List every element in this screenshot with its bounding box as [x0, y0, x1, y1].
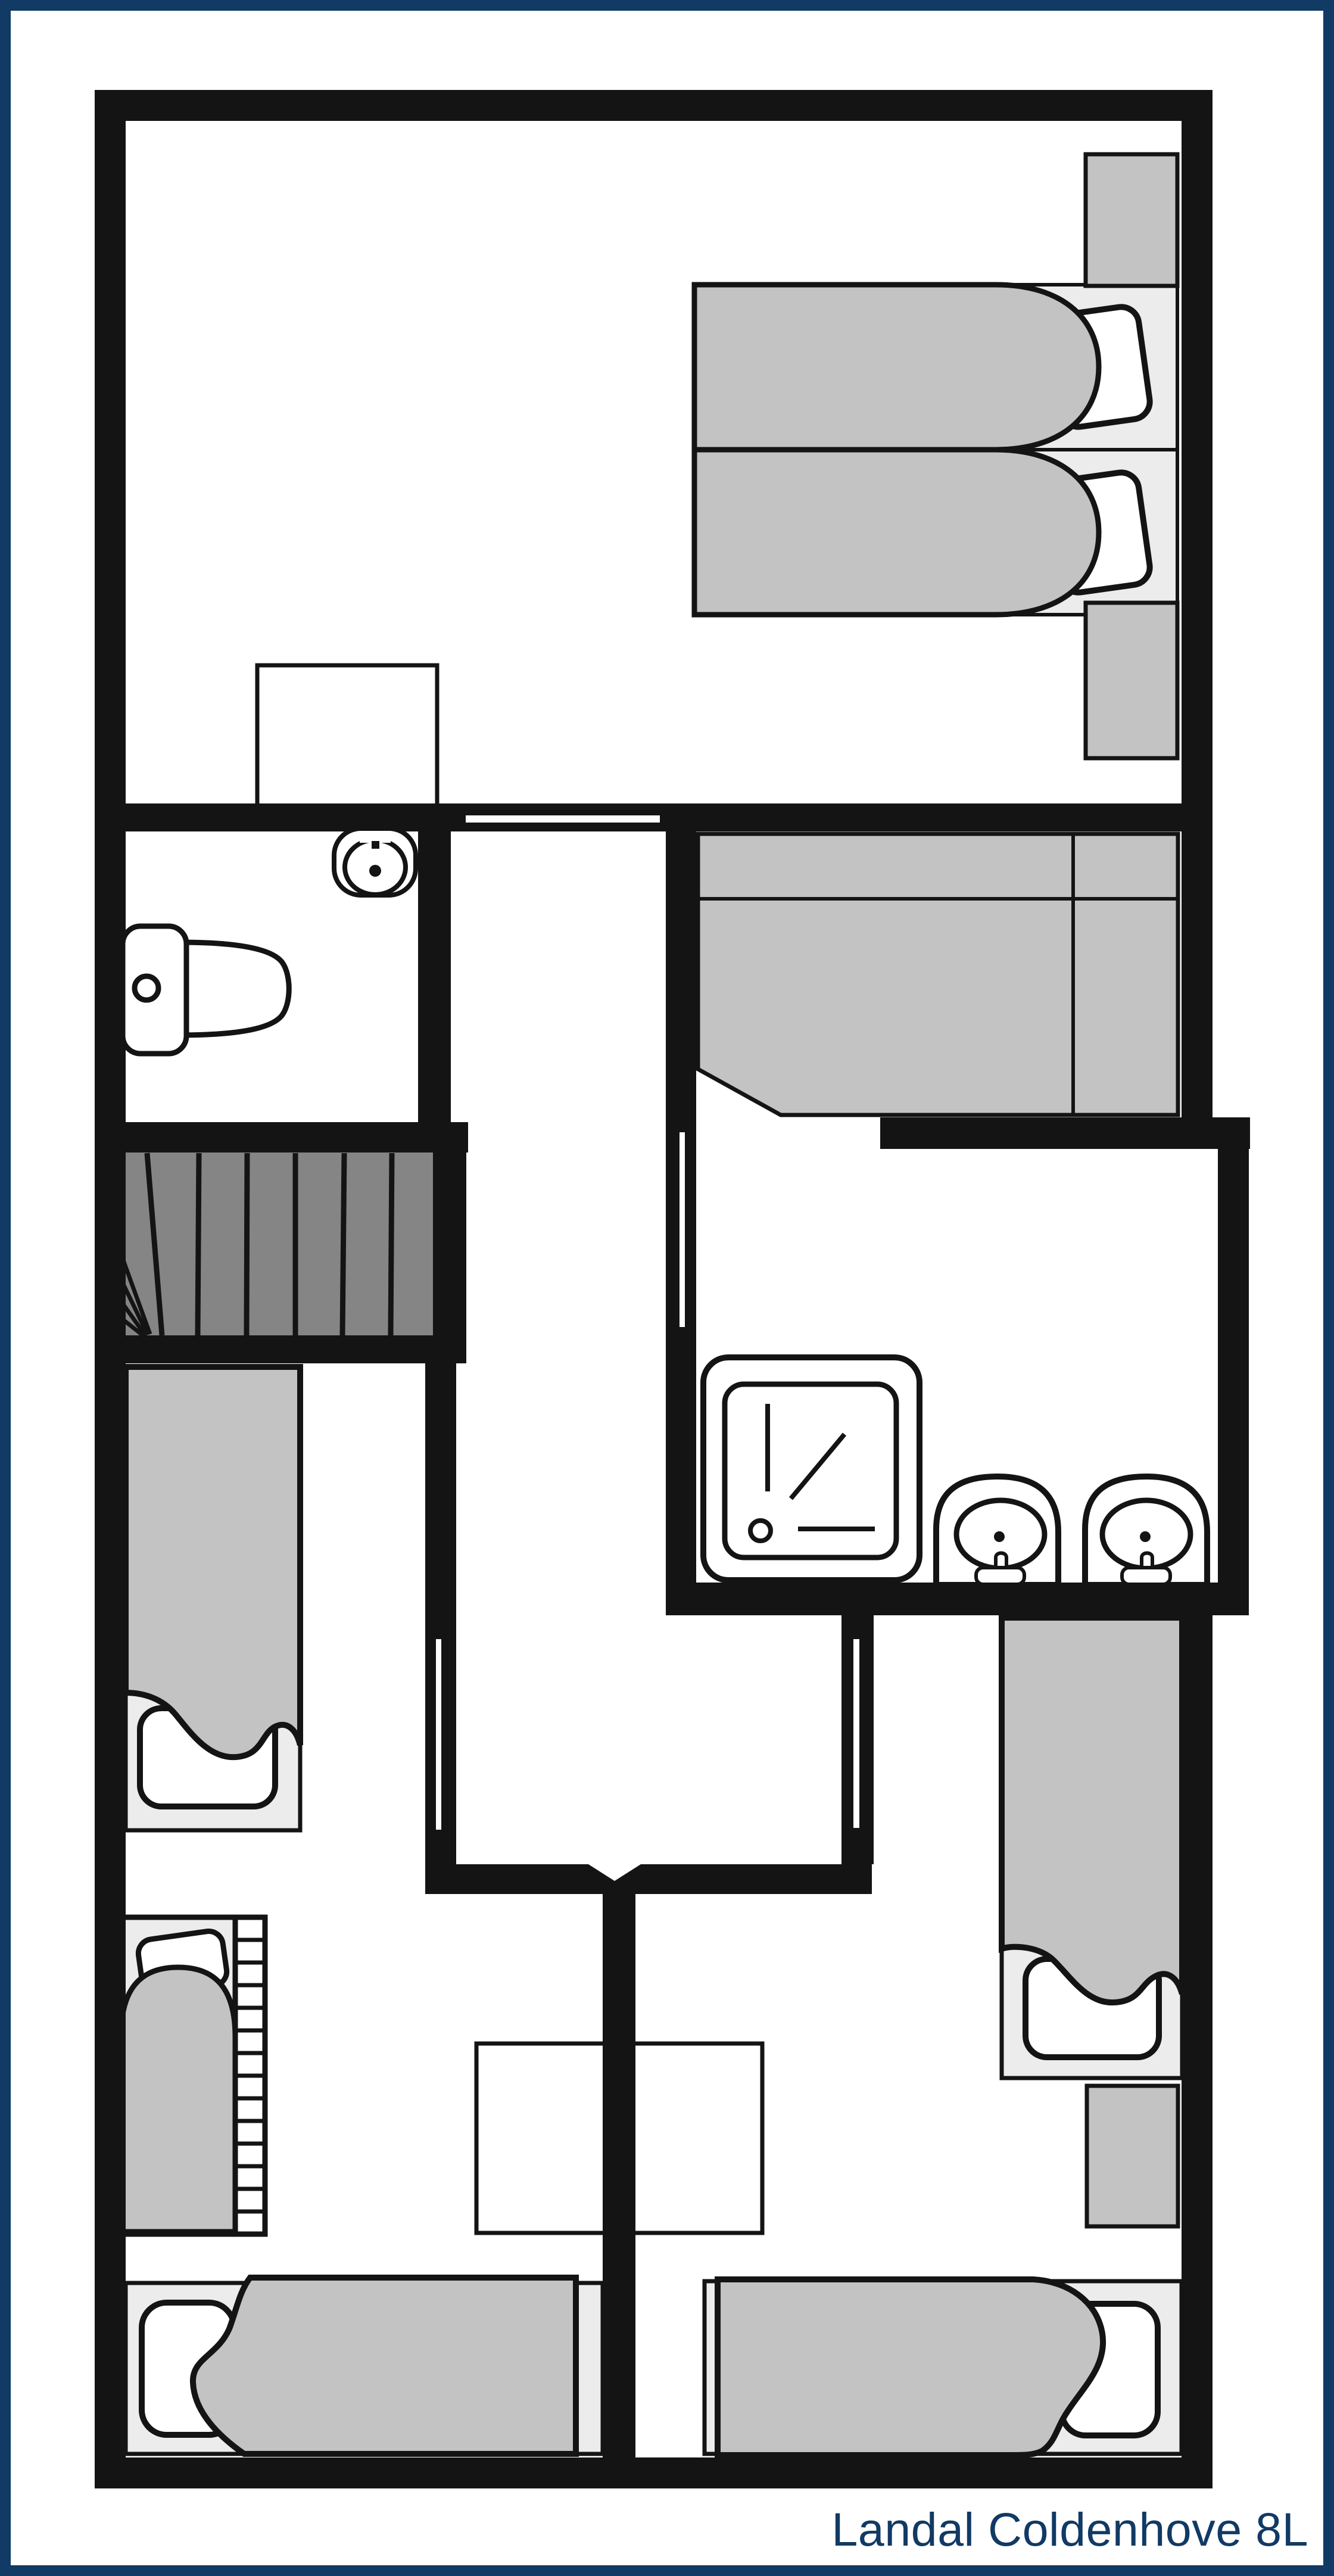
svg-text:Landal Coldenhove 8L: Landal Coldenhove 8L [831, 2503, 1308, 2556]
